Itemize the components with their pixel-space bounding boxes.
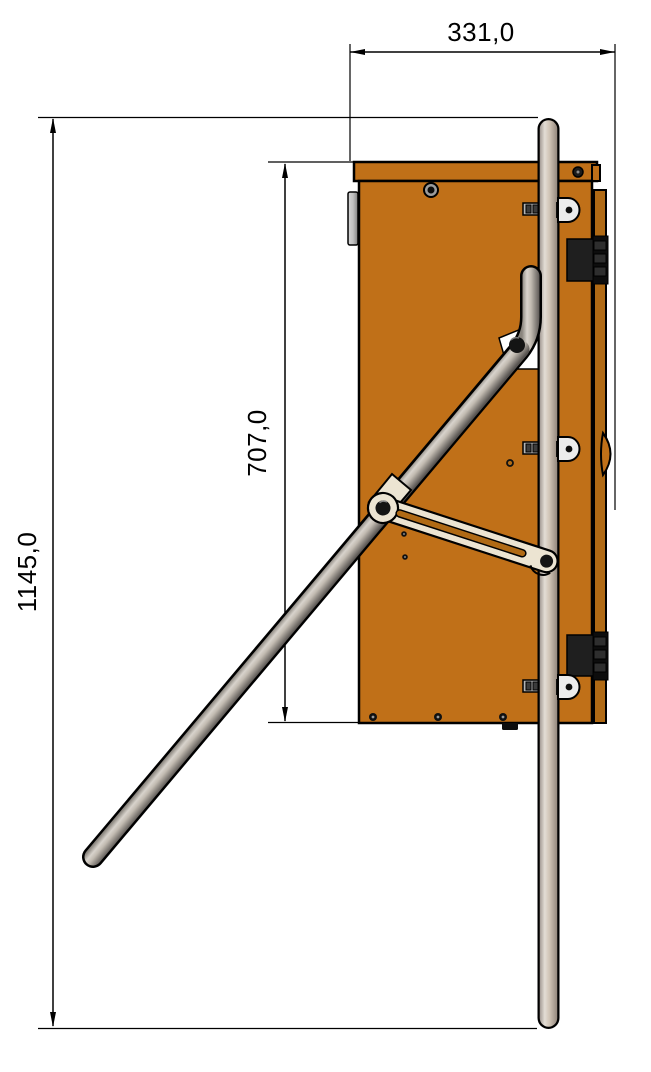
arrowhead-up-icon — [282, 163, 288, 178]
pole-clamp — [523, 680, 540, 692]
cabinet-lid — [354, 162, 597, 181]
hinge-knuckle — [594, 254, 606, 263]
screw-center — [404, 556, 406, 558]
pole-tab — [556, 675, 580, 699]
screw-center — [372, 716, 375, 719]
screw-center — [437, 716, 440, 719]
technical-drawing-canvas: 1145,0 331,0 707,0 — [0, 0, 651, 1072]
screw-center — [577, 171, 580, 174]
arrowhead-down-icon — [282, 707, 288, 722]
screw-center — [502, 716, 505, 719]
dimension-label-overall-height: 1145,0 — [12, 532, 42, 613]
pole-tab — [556, 198, 580, 222]
wall-bracket — [348, 192, 358, 245]
hinge-knuckle — [594, 241, 606, 250]
hinge-knuckle — [594, 637, 606, 646]
dimension-label-top-width: 331,0 — [447, 17, 515, 47]
cabinet-lid-step — [592, 165, 600, 181]
hinge-top — [567, 236, 608, 284]
screw-center — [403, 533, 405, 535]
lock-handle — [601, 433, 611, 475]
dimension-cabinet-height: 707,0 — [242, 162, 359, 723]
screw-center — [428, 187, 435, 194]
hinge-knuckle — [594, 663, 606, 672]
technical-drawing-page: 1145,0 331,0 707,0 — [0, 0, 651, 1072]
pole-tab — [556, 437, 580, 461]
hinge-knuckle — [594, 650, 606, 659]
dimension-label-cabinet-height: 707,0 — [242, 409, 272, 477]
arrowhead-left-icon — [350, 49, 365, 55]
arrowhead-down-icon — [50, 1012, 56, 1027]
arrowhead-right-icon — [600, 49, 615, 55]
bottom-tab — [502, 723, 518, 730]
hinge-bottom — [567, 632, 608, 680]
screw — [507, 460, 513, 466]
pole-clamp — [523, 203, 540, 215]
arrowhead-up-icon — [50, 118, 56, 133]
pole-clamp — [523, 442, 540, 454]
hinge-knuckle — [594, 267, 606, 276]
